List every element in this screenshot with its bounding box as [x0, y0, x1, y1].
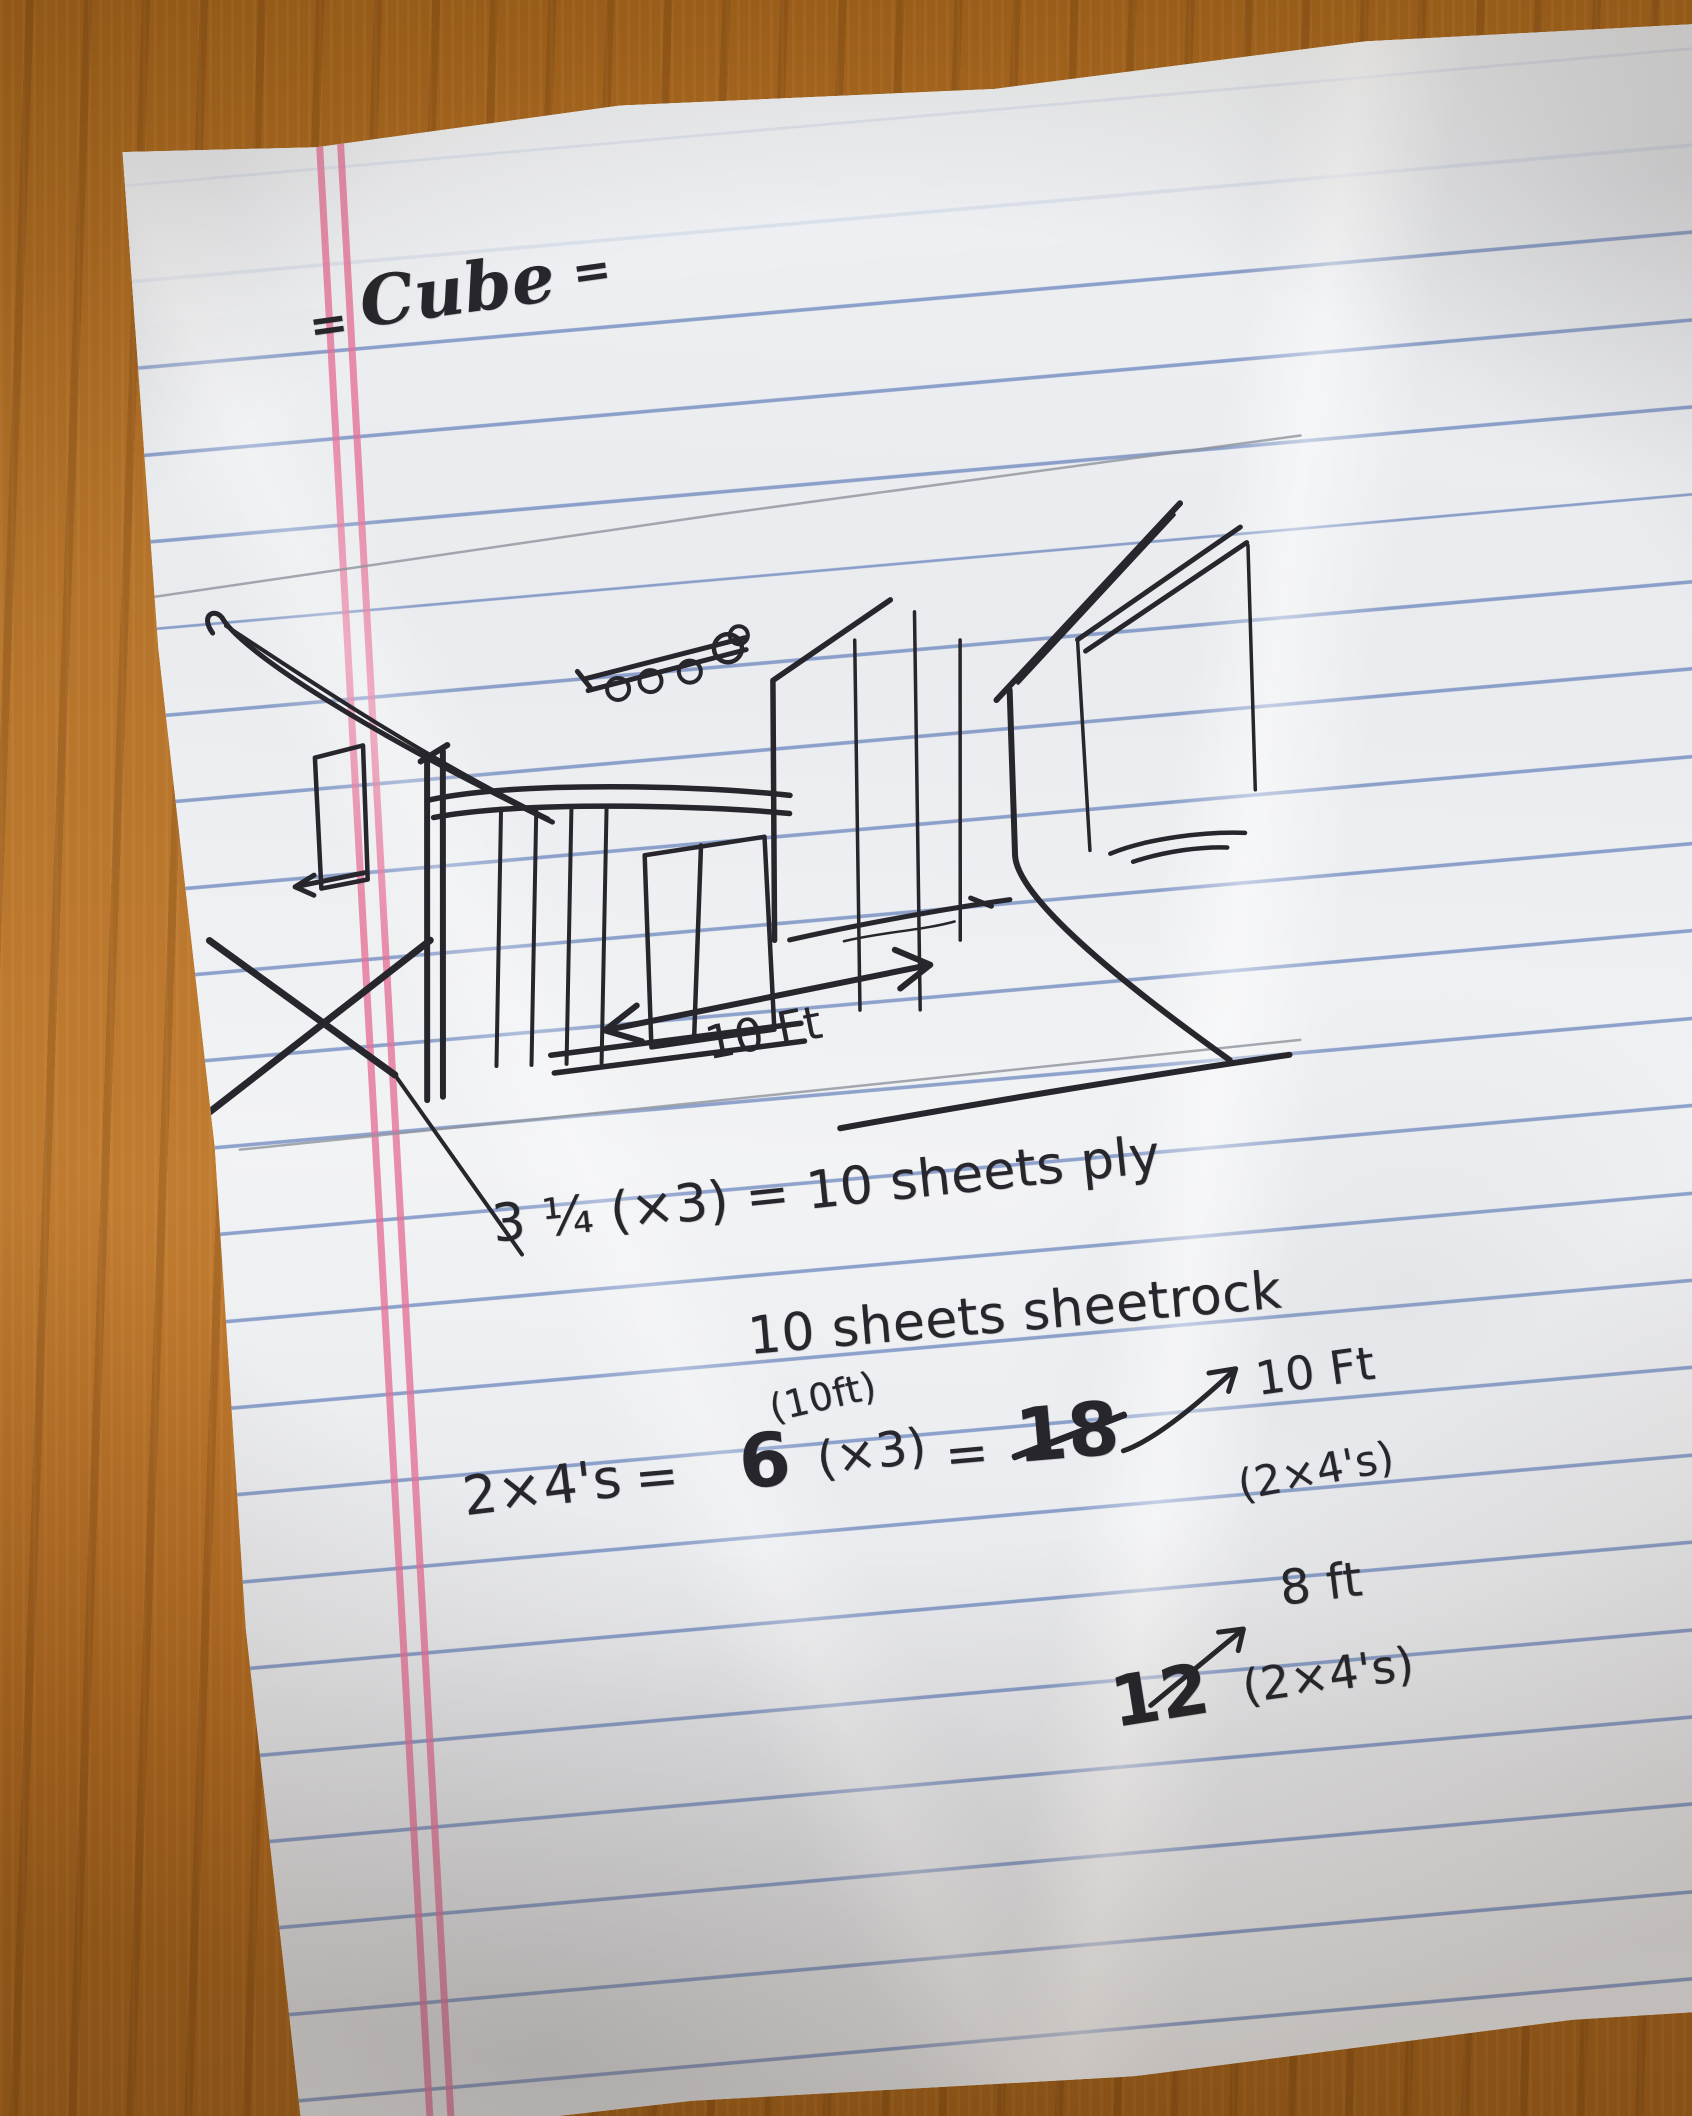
title-word: Cube [355, 243, 559, 338]
hook-rail [575, 625, 753, 703]
note-title: = Cube = [302, 236, 612, 346]
title-left-mark: = [306, 299, 348, 349]
stroke [164, 921, 446, 1134]
stroke [309, 745, 375, 888]
stroke [1001, 674, 1230, 1078]
calc-times-three: (×3) [813, 1417, 930, 1488]
calc-count-6: 6 [735, 1416, 794, 1506]
calc-equals-2: = [943, 1423, 992, 1487]
calc-sheetrock-line: 10 sheets sheetrock [745, 1261, 1284, 1367]
calc-2x4-label: 2×4's [459, 1446, 625, 1528]
annotation-2x4s-1: (2×4's) [1234, 1431, 1399, 1509]
annotation-arrow-icon [1110, 1353, 1258, 1460]
stroke [430, 765, 792, 844]
stroke [746, 600, 919, 940]
calc-crossed-out-18: 18 [1012, 1385, 1123, 1480]
hook-end-loop [713, 633, 743, 663]
stroke [1109, 830, 1246, 863]
annotation-8ft: 8 ft [1277, 1551, 1366, 1617]
stroke [837, 1055, 1292, 1128]
stroke [787, 895, 1011, 940]
stroke [981, 503, 1196, 700]
note-content: = Cube = [112, 0, 1692, 2116]
right-wall-window [1063, 527, 1275, 866]
notebook-paper: = Cube = [112, 0, 1692, 2116]
annotation-10ft: 10 Ft [1252, 1336, 1379, 1406]
calc-equals-1: = [632, 1446, 681, 1510]
annotation-2x4s-2: (2×4's) [1239, 1636, 1418, 1714]
annotation-result-12: 12 [1105, 1647, 1215, 1743]
title-right-mark: = [569, 246, 611, 296]
photo-of-handwritten-note: = Cube = [0, 0, 1692, 2116]
ceiling-lines [205, 503, 1203, 850]
arrow-stroke [1117, 1369, 1242, 1451]
